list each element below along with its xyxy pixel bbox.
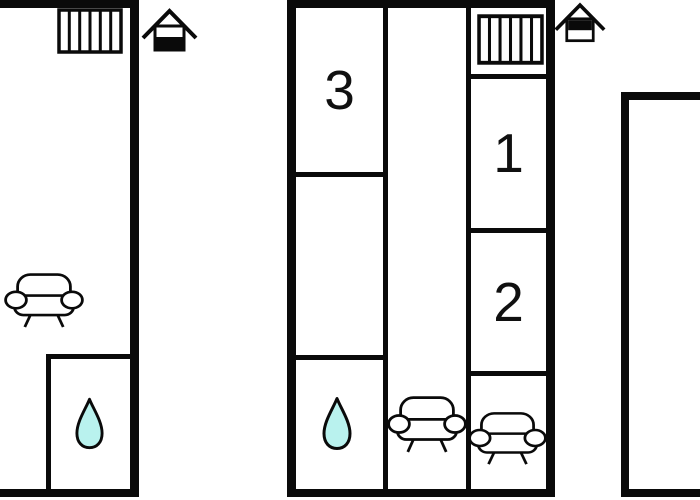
room-label-3: 3 bbox=[296, 8, 383, 172]
middle-plan-left-wall bbox=[287, 0, 296, 497]
left-plan-bathroom-left-wall bbox=[46, 354, 51, 489]
left-plan-bottom-wall bbox=[0, 489, 139, 497]
left-plan-bathroom-top-wall bbox=[46, 354, 130, 359]
middle-bathroom-top-wall bbox=[296, 355, 383, 360]
right-plan-left-wall bbox=[621, 92, 629, 497]
room-label-2: 2 bbox=[471, 233, 546, 371]
house-entrance-icon bbox=[554, 1, 606, 43]
right-plan-bottom-wall bbox=[621, 489, 700, 497]
left-plan-right-wall bbox=[130, 0, 139, 497]
sofa-icon bbox=[468, 409, 547, 467]
middle-plan-top-wall bbox=[287, 0, 555, 8]
room-label-1: 1 bbox=[471, 79, 546, 228]
house-entrance-icon bbox=[141, 7, 198, 52]
middle-plan-right-wall bbox=[546, 0, 555, 497]
room2-bottom-wall bbox=[471, 371, 546, 376]
sofa-icon bbox=[4, 270, 84, 330]
left-plan-top-wall bbox=[0, 0, 139, 8]
floorplan-canvas: 3 1 2 bbox=[0, 0, 700, 500]
radiator-icon bbox=[477, 14, 544, 65]
right-plan-top-wall bbox=[621, 92, 700, 100]
water-drop-icon bbox=[74, 395, 105, 452]
room3-bottom-wall bbox=[296, 172, 383, 177]
sofa-icon bbox=[387, 393, 467, 455]
radiator-icon bbox=[57, 8, 123, 54]
middle-plan-bottom-wall bbox=[287, 489, 555, 497]
water-drop-icon bbox=[321, 395, 353, 452]
